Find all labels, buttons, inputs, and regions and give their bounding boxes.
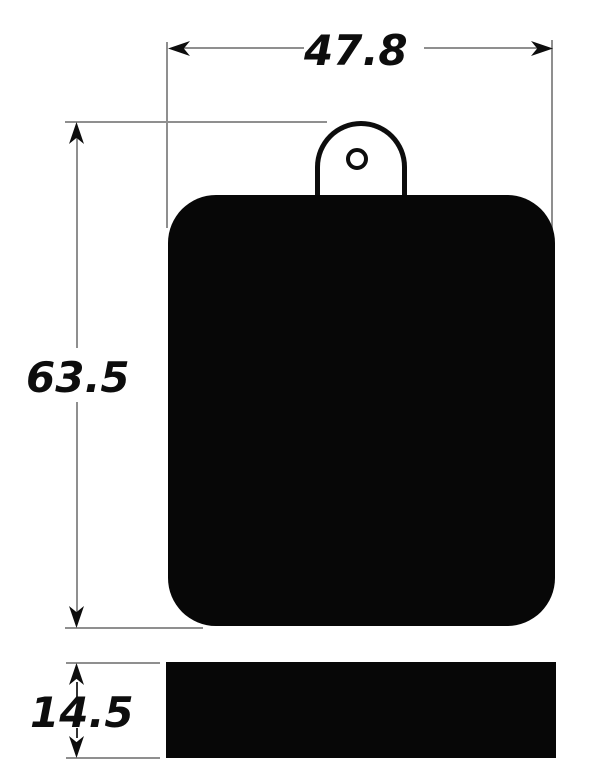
- extension-line-width-left: [166, 42, 168, 228]
- pad-side-view: [166, 662, 556, 758]
- extension-line-height-bottom: [65, 627, 203, 629]
- thickness-dimension-label: 14.5: [30, 692, 134, 734]
- dimension-line-height-upper: [76, 138, 78, 348]
- dimension-line-width-left: [182, 47, 304, 49]
- pad-front-view: [168, 195, 555, 626]
- dimension-line-width-right: [424, 47, 538, 49]
- dimension-line-height-lower: [76, 402, 78, 614]
- width-dimension-label: 47.8: [304, 30, 408, 72]
- extension-line-thickness-bottom: [66, 757, 160, 759]
- mounting-hole-icon: [346, 148, 368, 170]
- extension-line-width-right: [551, 40, 553, 230]
- drawing-canvas: 47.8 63.5 14.5: [0, 0, 601, 784]
- arrow-down-icon: [69, 736, 84, 758]
- height-dimension-label: 63.5: [26, 357, 130, 399]
- extension-line-thickness-top: [66, 662, 160, 664]
- extension-line-height-top: [65, 121, 327, 123]
